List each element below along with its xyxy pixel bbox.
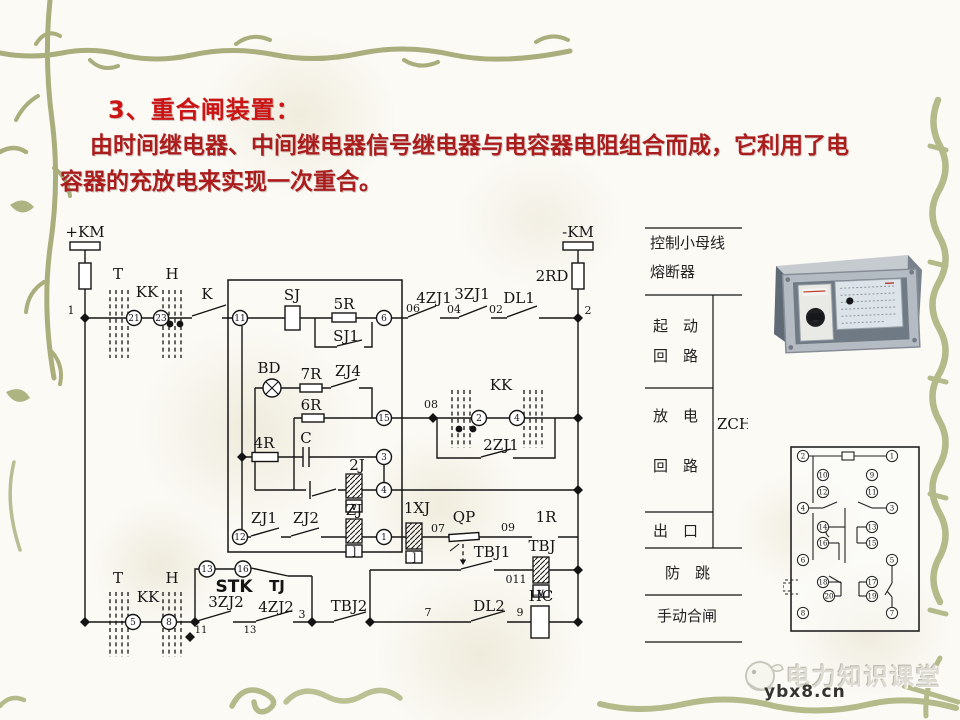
td-3: 3 [890, 505, 894, 513]
label-07: 07 [431, 522, 445, 535]
terminal-21: 21 [128, 314, 139, 324]
label-zj1: ZJ1 [251, 509, 277, 527]
label-t-bottom: T [113, 569, 123, 587]
label-zj: ZJ [346, 501, 362, 519]
label-6r: 6R [301, 396, 323, 414]
td-14: 14 [819, 524, 828, 532]
label-2j: 2J [349, 456, 365, 474]
panel-discharge-2: 回 路 [653, 457, 698, 475]
label-02: 02 [489, 303, 503, 316]
terminal-4b: 4 [514, 414, 520, 424]
label-kk-mid: KK [490, 376, 513, 394]
td-17: 17 [868, 579, 877, 587]
panel-fuse: 熔断器 [650, 263, 695, 281]
panel-discharge-1: 放 电 [653, 407, 698, 425]
label-4zj2: 4ZJ2 [258, 598, 294, 616]
label-2zj1: 2ZJ1 [483, 436, 519, 454]
panel-manual-close: 手动合闸 [657, 607, 717, 625]
function-annotation-panel: 控制小母线 熔断器 起 动 回 路 放 电 回 路 出 口 防 跳 手动合闸 Z… [640, 215, 748, 653]
panel-start-2: 回 路 [653, 347, 698, 365]
panel-antipump: 防 跳 [665, 564, 710, 582]
terminal-12: 12 [234, 533, 245, 543]
label-kk-bottom: KK [137, 588, 160, 606]
label-sj: SJ [284, 286, 300, 304]
terminal-23: 23 [155, 314, 167, 324]
terminal-16: 16 [237, 565, 249, 575]
label-1r: 1R [536, 508, 558, 526]
terminal-5: 5 [130, 618, 136, 628]
label-3zj2: 3ZJ2 [208, 593, 244, 611]
reclosing-circuit-diagram: 21 23 11 6 15 3 4 12 1 2 4 5 8 13 16 +KM… [55, 205, 667, 657]
label-7: 7 [425, 606, 432, 619]
label-sj1: SJ1 [333, 327, 359, 345]
td-20: 20 [825, 593, 834, 601]
mark-1xj: ] [412, 551, 416, 564]
watermark-site: ybx8.cn [764, 682, 846, 702]
label-h-bottom: H [165, 569, 178, 587]
terminal-4: 4 [381, 486, 387, 496]
td-13: 13 [868, 524, 877, 532]
label-h-top: H [165, 265, 178, 283]
label-011: 011 [506, 573, 527, 586]
td-5: 5 [890, 557, 894, 565]
label-9: 9 [517, 606, 524, 619]
label-zj2: ZJ2 [293, 509, 319, 527]
label-zch: ZCH [717, 415, 748, 433]
td-2: 2 [801, 453, 805, 461]
terminal-11: 11 [234, 314, 245, 324]
label-k: K [201, 285, 213, 303]
label-node-3: 3 [299, 608, 306, 621]
label-dl1: DL1 [503, 289, 535, 307]
body-line-1: 由时间继电器、中间继电器信号继电器与电容器电阻组合而成，它利用了电 [60, 128, 920, 164]
td-16: 16 [819, 540, 828, 548]
label-09: 09 [501, 521, 515, 534]
terminal-8: 8 [166, 618, 172, 628]
label-04: 04 [447, 303, 461, 316]
label-2rd: 2RD [536, 267, 569, 285]
label-node-2: 2 [585, 304, 592, 317]
label-c: C [300, 429, 311, 447]
label-08: 08 [424, 398, 438, 411]
body-line-2: 容器的充放电来实现一次重合。 [60, 164, 920, 200]
label-5r: 5R [334, 295, 356, 313]
label-tbj2: TBJ2 [331, 597, 368, 615]
terminal-13: 13 [201, 565, 213, 575]
panel-start-1: 起 动 [653, 317, 698, 335]
label-qp: QP [453, 508, 475, 526]
slide: 3、重合闸装置： 由时间继电器、中间继电器信号继电器与电容器电阻组合而成，它利用… [0, 0, 960, 720]
label-7r: 7R [301, 365, 323, 383]
td-15: 15 [868, 540, 877, 548]
label-plus-km: +KM [65, 223, 104, 241]
mark-zj: ] [352, 545, 356, 558]
terminal-circles: 21 23 11 6 15 3 4 12 1 2 4 5 8 13 16 [126, 311, 525, 630]
panel-outlet: 出 口 [653, 522, 698, 540]
label-tj: TJ [269, 577, 285, 595]
label-hc: HC [529, 587, 554, 605]
label-t-top: T [113, 265, 123, 283]
label-dl2: DL2 [473, 597, 505, 615]
label-kk-top: KK [136, 283, 159, 301]
slide-title: 3、重合闸装置： [108, 90, 301, 125]
panel-control-bus: 控制小母线 [650, 234, 725, 252]
label-tbj: TBJ [528, 537, 555, 555]
td-19: 19 [868, 593, 877, 601]
circuit-labels: +KM -KM 2RD 1 2 T H KK K SJ 5R SJ1 06 4Z… [65, 223, 593, 636]
td-4: 4 [801, 505, 806, 513]
label-bd: BD [257, 359, 280, 377]
label-minus-km: -KM [562, 223, 594, 241]
relay-terminal-diagram: 2 4 6 8 10 12 14 16 18 20 9 11 13 15 17 … [783, 443, 933, 638]
td-10: 10 [819, 472, 828, 480]
td-18: 18 [819, 579, 828, 587]
terminal-2: 2 [476, 414, 482, 424]
panel-labels: 控制小母线 熔断器 起 动 回 路 放 电 回 路 出 口 防 跳 手动合闸 Z… [650, 234, 748, 625]
terminal-15: 15 [378, 414, 390, 424]
label-3zj1: 3ZJ1 [454, 285, 490, 303]
td-7: 7 [890, 610, 894, 618]
td-11: 11 [868, 489, 877, 497]
td-8: 8 [801, 610, 805, 618]
td-9: 9 [870, 472, 874, 480]
label-1xj: 1XJ [404, 499, 430, 517]
td-1: 1 [890, 453, 894, 461]
terminal-3: 3 [381, 453, 387, 463]
slide-body: 由时间继电器、中间继电器信号继电器与电容器电阻组合而成，它利用了电 容器的充放电… [60, 128, 920, 200]
label-node-1: 1 [68, 304, 75, 317]
label-node-11: 11 [195, 625, 208, 636]
td-12: 12 [819, 489, 828, 497]
relay-device-photo [758, 246, 938, 368]
terminal-6: 6 [381, 314, 387, 324]
label-4r: 4R [254, 434, 276, 452]
label-tbj1: TBJ1 [474, 543, 511, 561]
label-zj4: ZJ4 [335, 362, 361, 380]
td-6: 6 [801, 557, 806, 565]
label-13: 13 [244, 625, 257, 636]
terminal-1: 1 [381, 533, 387, 543]
